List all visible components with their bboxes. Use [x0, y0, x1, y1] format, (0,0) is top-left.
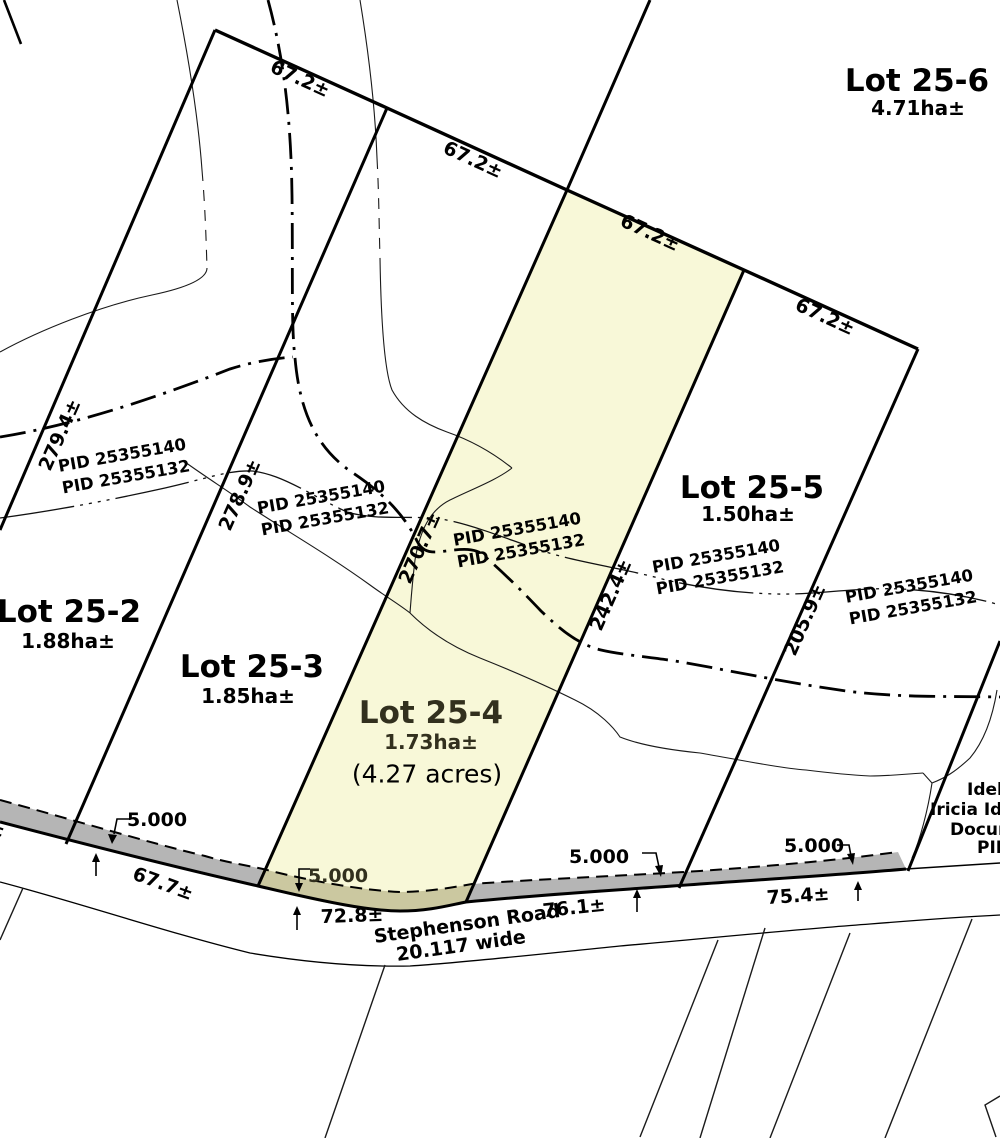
northwest-boundary-stub	[4, 0, 21, 44]
side-dim-205-9: 205.9±	[779, 581, 830, 659]
north-dim-1: 67.2±	[267, 56, 333, 102]
north-dim-4: 67.2±	[792, 294, 858, 340]
pid-pair-2: PID 25355140 PID 25355132	[256, 477, 391, 540]
north-dim-2: 67.2±	[440, 137, 506, 183]
edge-dim-fragment: ±	[0, 816, 8, 842]
stream-line	[932, 690, 997, 783]
south-lot-corner	[985, 1096, 1000, 1137]
adjacent-owner-line: PID	[977, 838, 1000, 858]
south-lot-line	[885, 919, 972, 1138]
lot-25-5-label: Lot 25-5	[680, 470, 824, 506]
callout-bracket	[642, 853, 659, 867]
arrowhead-icon	[633, 889, 641, 898]
survey-plan-page: Lot 25-2 1.88ha± Lot 25-3 1.85ha± Lot 25…	[0, 0, 1000, 1138]
widening-dim-1: 5.000	[127, 809, 187, 831]
adjacent-owner-line: Iricia Ide	[930, 800, 1000, 820]
arrowhead-icon	[92, 853, 100, 862]
stream-line	[177, 0, 202, 170]
lot-25-4-area: 1.73ha±	[384, 730, 478, 754]
stream-line	[0, 268, 207, 352]
adjacent-owner-line: Docum	[950, 820, 1000, 840]
widening-dim-3: 5.000	[569, 846, 629, 868]
lot-25-3-area: 1.85ha±	[201, 684, 295, 708]
adjacent-owner-line: Idel	[967, 780, 1000, 800]
widening-dim-2: 5.000	[308, 865, 368, 887]
south-lot-line	[770, 933, 850, 1138]
frontage-dim-76-1: 76.1±	[542, 894, 607, 922]
survey-plan-drawing: Lot 25-2 1.88ha± Lot 25-3 1.85ha± Lot 25…	[0, 0, 1000, 1138]
road-widening-strip-east	[466, 852, 906, 902]
south-lot-line	[640, 940, 718, 1137]
stream-line-dashed	[377, 158, 380, 258]
south-lot-line	[0, 888, 23, 940]
widening-dim-4: 5.000	[784, 835, 844, 857]
lot-25-3-label: Lot 25-3	[180, 649, 324, 685]
lot-25-5-area: 1.50ha±	[701, 502, 795, 526]
lot-25-6-label: Lot 25-6	[845, 63, 989, 99]
lot-25-6-area: 4.71ha±	[871, 96, 965, 120]
lot-25-4-label: Lot 25-4	[359, 695, 503, 731]
arrowhead-icon	[293, 906, 301, 915]
frontage-dim-75-4: 75.4±	[766, 883, 830, 909]
pid-pair-1: PID 25355140 PID 25355132	[57, 435, 192, 498]
pid-pair-5: PID 25355140 PID 25355132	[844, 566, 979, 629]
frontage-dim-72-8: 72.8±	[320, 904, 384, 928]
side-dim-278-9: 278.9±	[214, 456, 265, 534]
lot-25-2-area: 1.88ha±	[21, 629, 115, 653]
arrowhead-icon	[854, 881, 862, 890]
south-lot-line	[325, 965, 385, 1138]
stream-line-dashed	[202, 170, 207, 268]
road-north-edge-thin	[906, 863, 1000, 869]
lot-25-4-area-acres: (4.27 acres)	[352, 760, 502, 789]
lot-25-2-label: Lot 25-2	[0, 594, 141, 630]
